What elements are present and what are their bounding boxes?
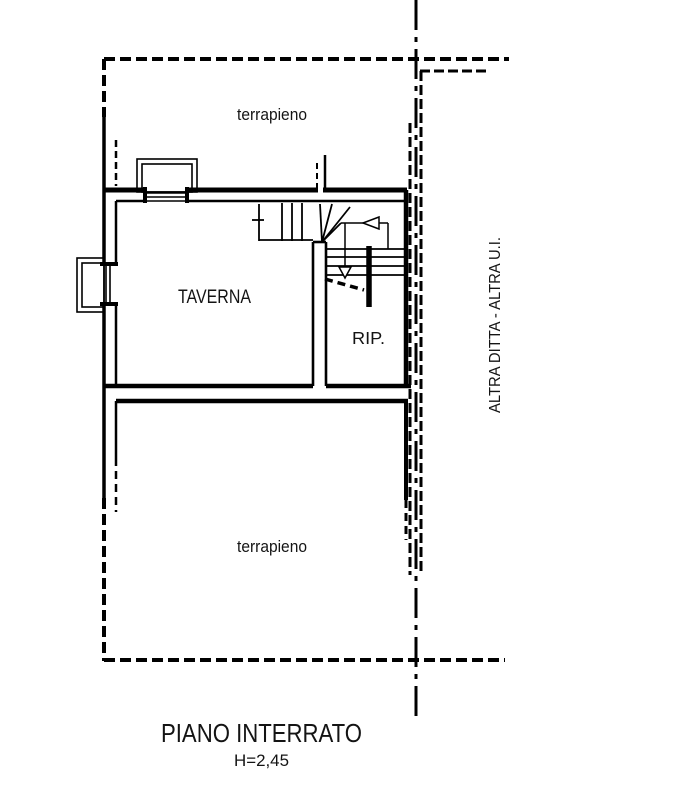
top-window	[137, 159, 197, 203]
rip-label: RIP.	[352, 328, 385, 348]
terrapieno-top-label: terrapieno	[237, 105, 307, 124]
site-boundary	[104, 59, 509, 661]
down-arrow-icon	[339, 267, 351, 278]
neighbor-label: ALTRA DITTA - ALTRA U.I.	[487, 237, 504, 413]
left-window	[77, 258, 118, 312]
floor-plan-drawing: terrapieno TAVERNA RIP. terrapieno ALTRA…	[0, 0, 695, 800]
left-window-inner-frame	[82, 263, 104, 307]
plan-title: PIANO INTERRATO	[161, 718, 362, 748]
stair-cut-line	[325, 279, 364, 290]
plan-height-note: H=2,45	[234, 751, 289, 770]
floor-plan-svg: terrapieno TAVERNA RIP. terrapieno ALTRA…	[0, 0, 695, 800]
stair-winder	[320, 204, 322, 242]
terrapieno-bottom-label: terrapieno	[237, 537, 307, 556]
left-window-outer-frame	[77, 258, 104, 312]
taverna-label: TAVERNA	[178, 286, 251, 308]
exterior-walls	[104, 117, 411, 498]
wall-stubs	[116, 140, 325, 190]
staircase	[252, 203, 406, 386]
neighbor-boundary	[410, 71, 488, 575]
top-window-inner-frame	[142, 164, 192, 192]
lower-retaining-walls	[116, 401, 408, 540]
up-arrow-icon	[363, 217, 379, 229]
